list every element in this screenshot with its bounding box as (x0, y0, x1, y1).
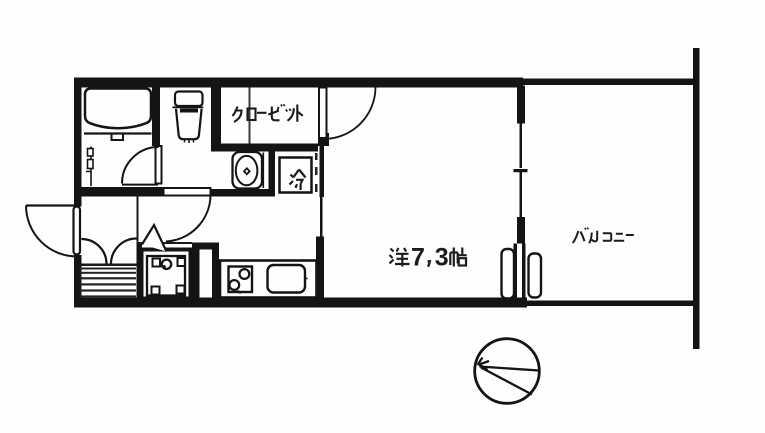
svg-text:3: 3 (435, 244, 449, 272)
svg-text:7: 7 (411, 244, 425, 272)
